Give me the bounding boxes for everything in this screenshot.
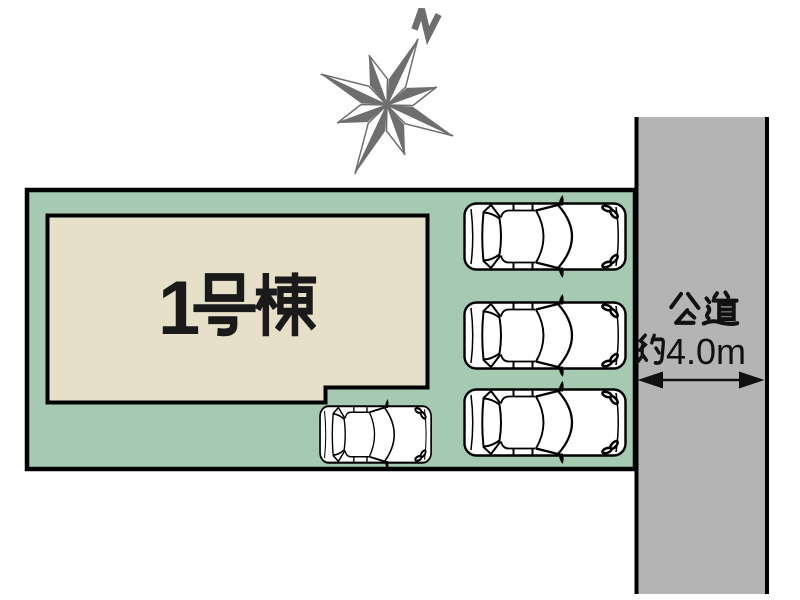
- svg-text:4.0m: 4.0m: [666, 331, 746, 372]
